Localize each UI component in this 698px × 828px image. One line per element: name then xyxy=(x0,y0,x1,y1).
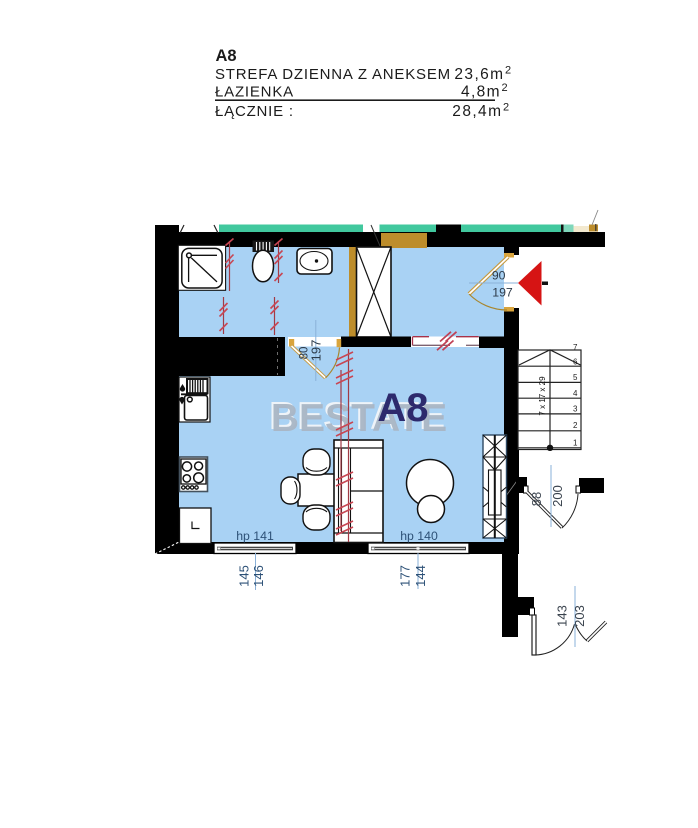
svg-text:203: 203 xyxy=(572,605,587,627)
svg-text:145: 145 xyxy=(237,565,252,587)
svg-text:144: 144 xyxy=(413,565,428,587)
svg-text:90: 90 xyxy=(492,269,506,283)
svg-text:hp 141: hp 141 xyxy=(236,529,274,543)
svg-text:2: 2 xyxy=(505,65,511,77)
svg-text:177: 177 xyxy=(398,565,413,587)
svg-text:143: 143 xyxy=(555,605,570,627)
svg-text:4,8m: 4,8m xyxy=(461,84,501,101)
svg-text:ŁAZIENKA: ŁAZIENKA xyxy=(215,84,294,101)
svg-text:1: 1 xyxy=(573,439,578,448)
svg-text:2: 2 xyxy=(573,421,578,430)
svg-text:A8: A8 xyxy=(377,386,428,430)
svg-text:STREFA DZIENNA Z ANEKSEM: STREFA DZIENNA Z ANEKSEM xyxy=(215,66,451,83)
svg-text:3: 3 xyxy=(573,405,578,414)
svg-text:6: 6 xyxy=(573,358,578,367)
svg-text:7: 7 xyxy=(573,343,578,352)
svg-text:hp 140: hp 140 xyxy=(400,529,438,543)
svg-text:4: 4 xyxy=(573,389,578,398)
svg-text:5: 5 xyxy=(573,373,578,382)
svg-text:2: 2 xyxy=(502,82,508,94)
svg-text:2: 2 xyxy=(503,102,509,114)
svg-text:28,4m: 28,4m xyxy=(452,103,502,120)
svg-text:ŁĄCZNIE :: ŁĄCZNIE : xyxy=(215,103,294,120)
svg-text:A8: A8 xyxy=(216,47,237,65)
svg-text:197: 197 xyxy=(492,286,513,300)
svg-text:88: 88 xyxy=(529,492,544,506)
svg-text:146: 146 xyxy=(251,565,266,587)
svg-text:7 x 17 x 29: 7 x 17 x 29 xyxy=(538,376,547,416)
svg-text:23,6m: 23,6m xyxy=(454,66,504,83)
svg-text:197: 197 xyxy=(308,340,323,362)
svg-text:200: 200 xyxy=(550,485,565,507)
